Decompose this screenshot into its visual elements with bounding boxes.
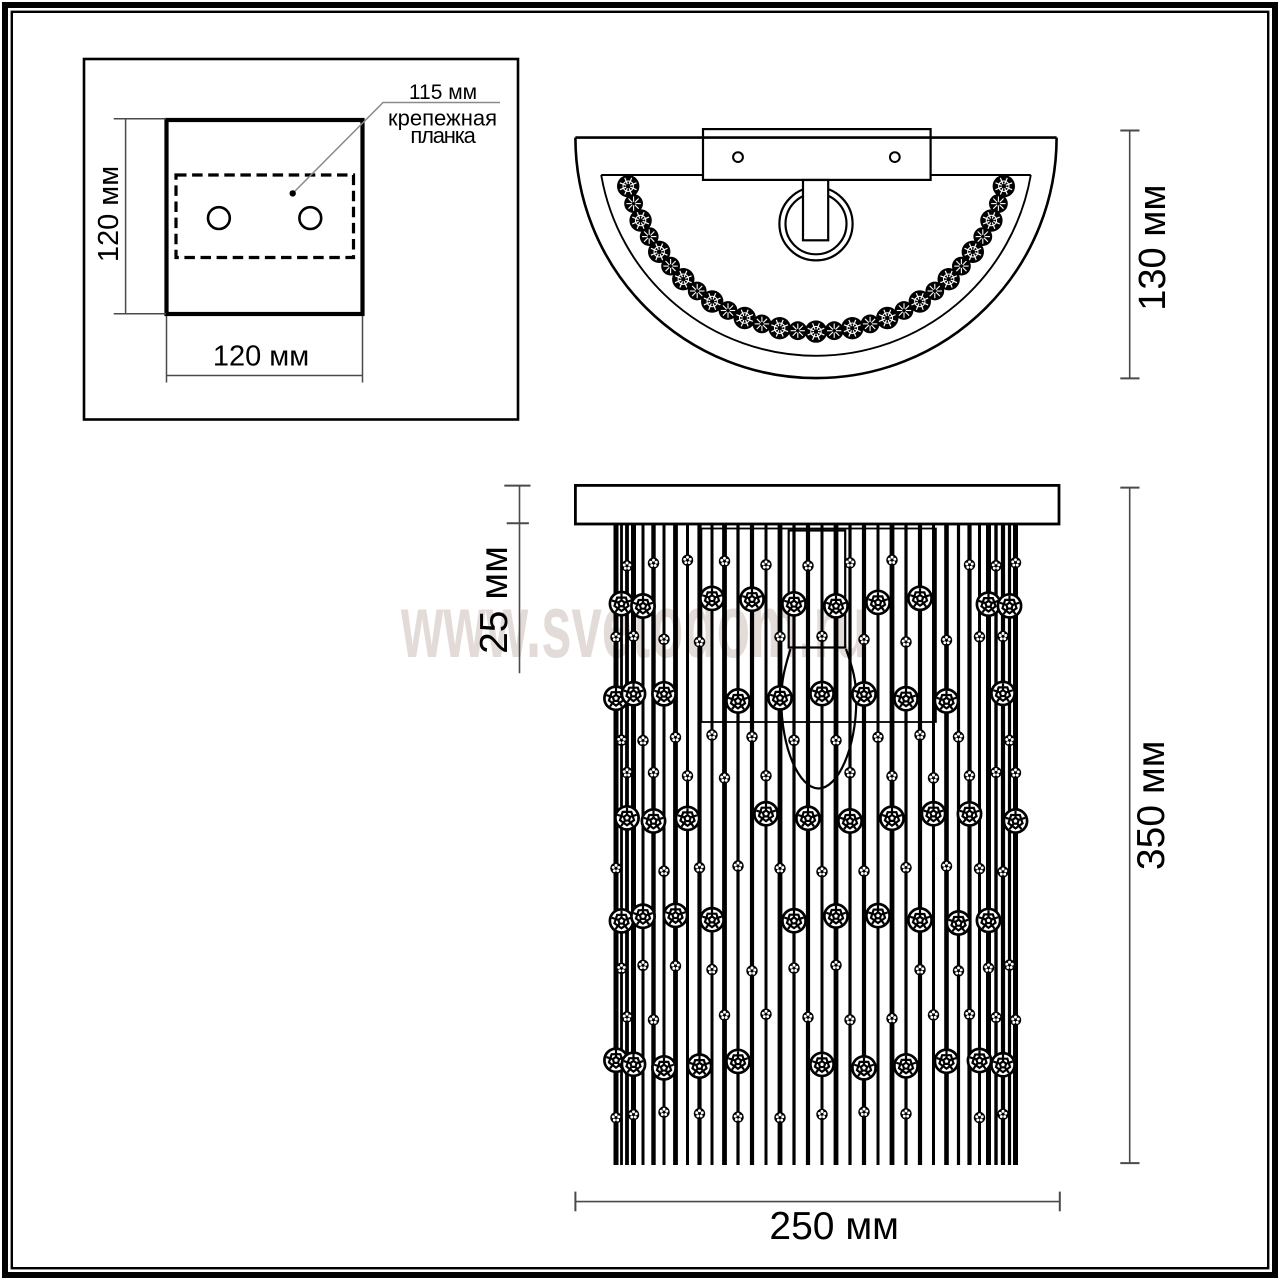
svg-text:планка: планка (410, 123, 476, 148)
svg-text:120 мм: 120 мм (213, 340, 309, 372)
svg-text:130 мм: 130 мм (1132, 184, 1174, 310)
svg-text:350 мм: 350 мм (1130, 741, 1173, 871)
svg-text:120 мм: 120 мм (93, 166, 125, 262)
svg-text:250 мм: 250 мм (769, 1205, 899, 1248)
svg-text:25 мм: 25 мм (473, 546, 516, 654)
svg-text:115 мм: 115 мм (409, 81, 477, 104)
